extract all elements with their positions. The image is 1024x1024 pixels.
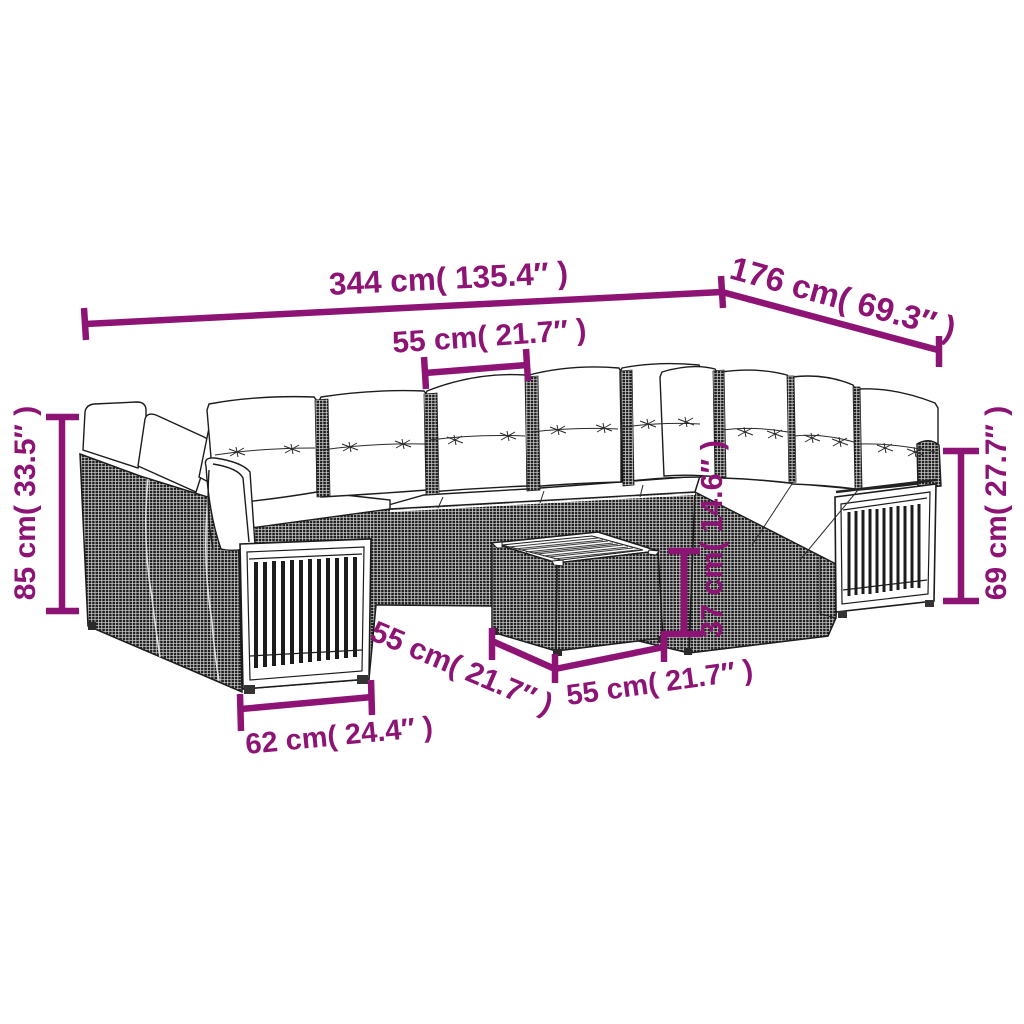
svg-text:85 cm( 33.5″ ): 85 cm( 33.5″ ): [9, 406, 42, 600]
svg-text:69 cm( 27.7″ ): 69 cm( 27.7″ ): [980, 406, 1013, 600]
svg-text:37 cm( 14.6″ ): 37 cm( 14.6″ ): [695, 440, 729, 638]
